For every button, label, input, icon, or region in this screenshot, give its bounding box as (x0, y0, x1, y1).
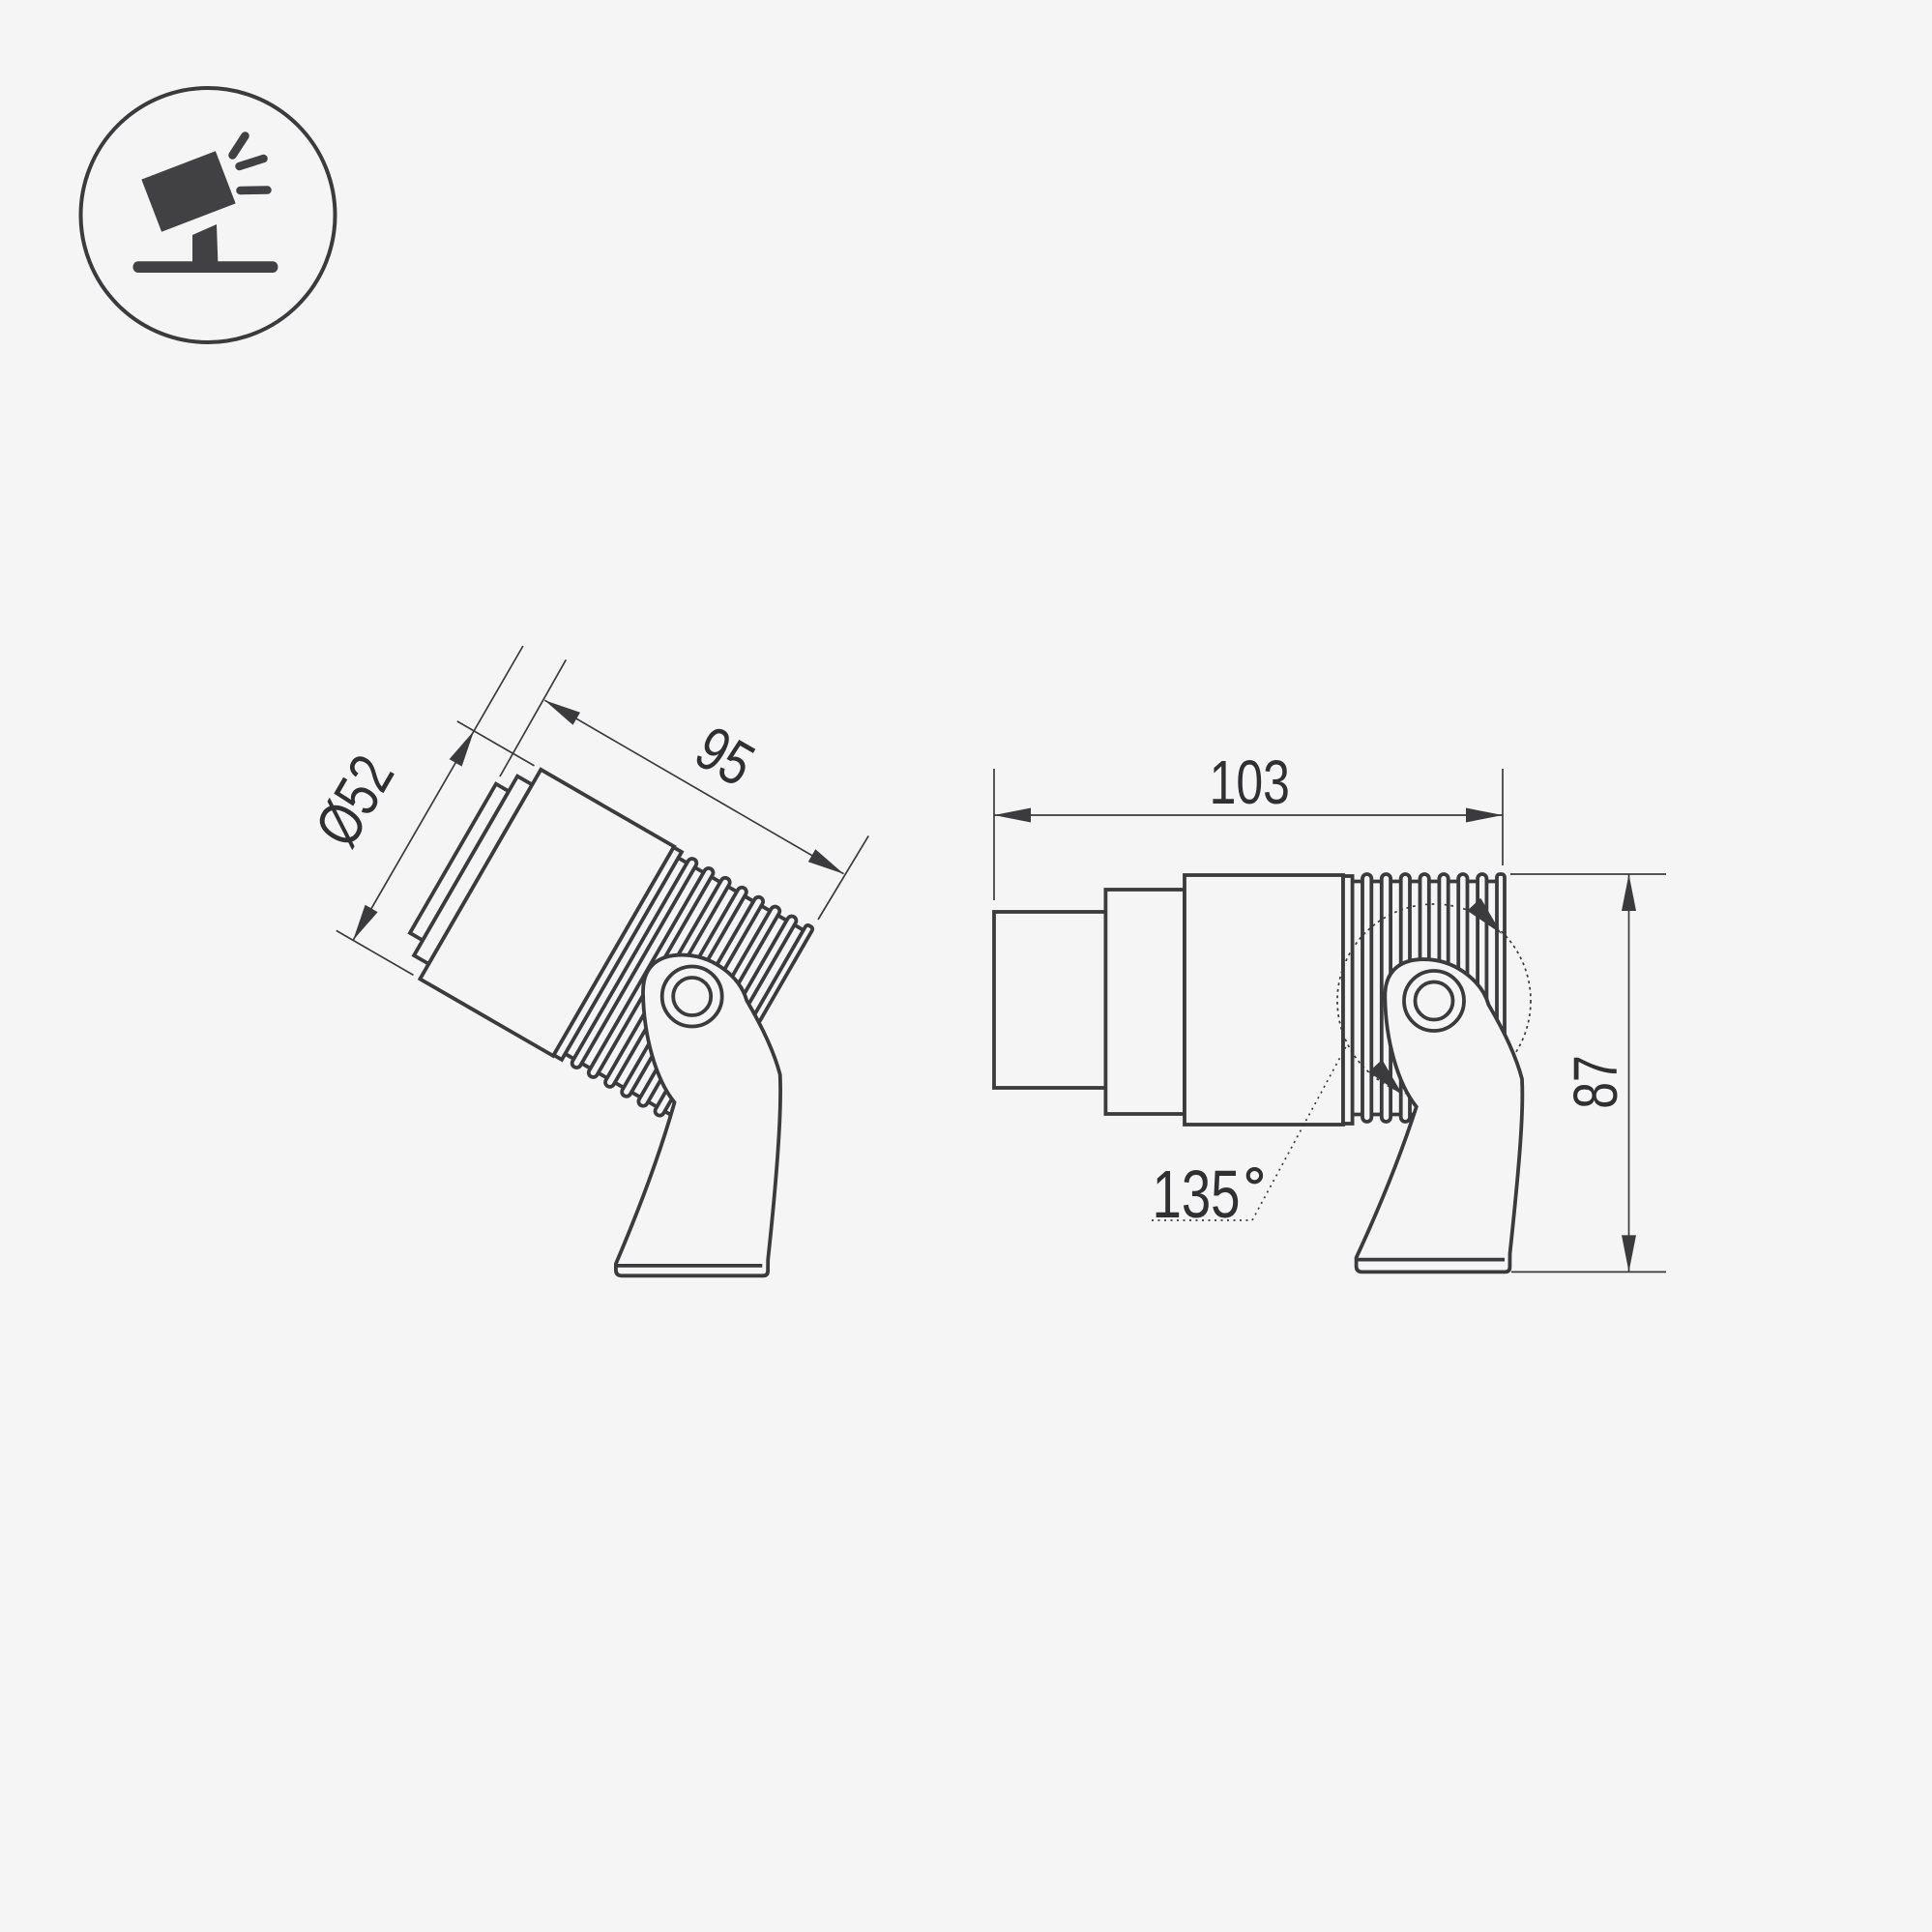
svg-text:103: 103 (1210, 748, 1290, 817)
svg-text:87: 87 (1562, 1055, 1630, 1109)
svg-text:135: 135 (1152, 1157, 1240, 1233)
